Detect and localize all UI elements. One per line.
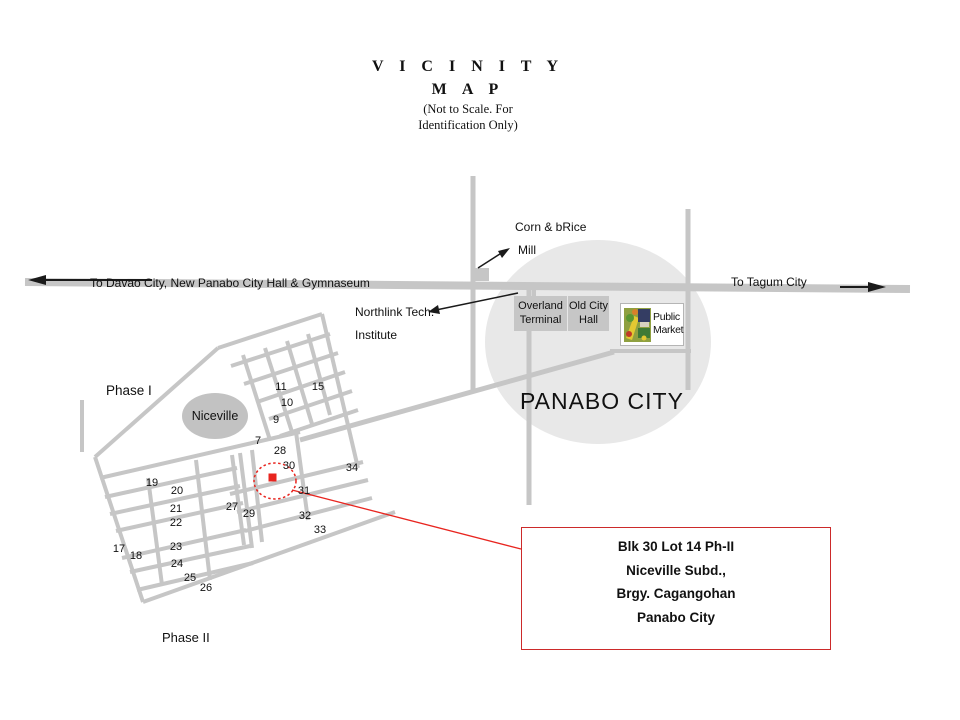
old-city-hall-box: Old City Hall	[568, 296, 609, 331]
old-city-hall-line1: Old City	[568, 299, 609, 313]
highway-roads	[25, 176, 910, 505]
overland-terminal-line1: Overland	[514, 299, 567, 313]
northlink-label-line2: Institute	[355, 328, 397, 342]
callout-line-2: Niceville Subd.,	[522, 559, 830, 583]
title-line-2: M A P	[338, 81, 598, 99]
niceville-label: Niceville	[192, 409, 239, 423]
phase1-label: Phase I	[106, 383, 152, 398]
subdivision-streets	[82, 314, 395, 602]
title-line-1: V I C I N I T Y	[338, 58, 598, 76]
location-marker-group	[254, 463, 521, 549]
northlink-label-line1: Northlink Tech.	[355, 305, 434, 319]
mill-label-line1: Corn & bRice	[515, 220, 586, 234]
public-market-line1: Public	[653, 311, 683, 324]
mill-pointer-line	[478, 252, 503, 268]
location-square-marker	[269, 474, 277, 482]
mill-pointer-head	[498, 248, 510, 258]
property-callout-box: Blk 30 Lot 14 Ph-II Niceville Subd., Brg…	[521, 527, 831, 650]
title-note-2: Identification Only)	[338, 119, 598, 131]
phase2-label: Phase II	[162, 630, 210, 645]
map-title-block: V I C I N I T Y M A P (Not to Scale. For…	[338, 58, 598, 131]
road-label-davao: To Davao City, New Panabo City Hall & Gy…	[90, 276, 370, 290]
city-name-label: PANABO CITY	[520, 388, 684, 415]
callout-line-3: Brgy. Cagangohan	[522, 582, 830, 606]
overland-terminal-box: Overland Terminal	[514, 296, 567, 331]
overland-terminal-line2: Terminal	[514, 313, 567, 327]
old-city-hall-line2: Hall	[568, 313, 609, 327]
callout-leader-line	[292, 490, 521, 549]
rice-mill-building	[471, 268, 489, 281]
callout-line-1: Blk 30 Lot 14 Ph-II	[522, 535, 830, 559]
road-label-tagum: To Tagum City	[731, 275, 807, 289]
callout-line-4: Panabo City	[522, 606, 830, 630]
title-note-1: (Not to Scale. For	[338, 103, 598, 115]
vicinity-map-page: V I C I N I T Y M A P (Not to Scale. For…	[0, 0, 960, 720]
mill-label-line2: Mill	[518, 243, 536, 257]
public-market-box: Public Market	[620, 303, 684, 346]
public-market-line2: Market	[653, 324, 683, 337]
public-market-photo-icon	[624, 308, 651, 342]
public-market-label: Public Market	[653, 311, 683, 337]
